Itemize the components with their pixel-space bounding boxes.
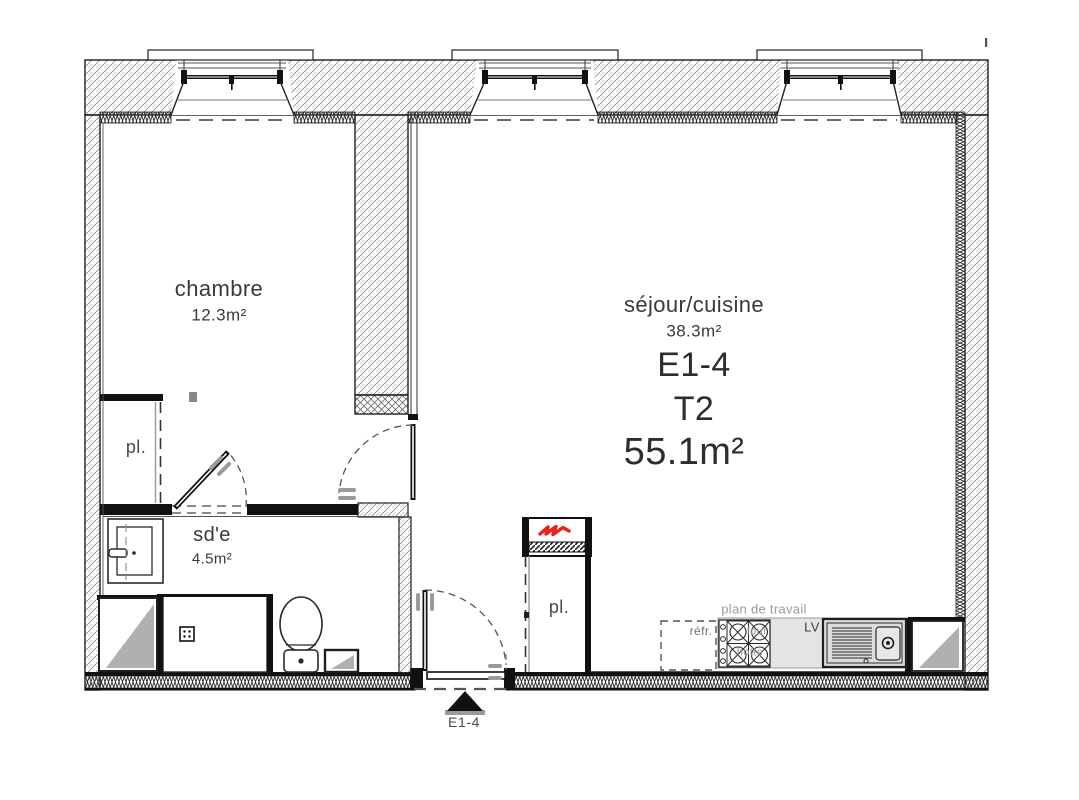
sde-door <box>175 452 246 508</box>
partition-walls <box>100 115 905 673</box>
window-3 <box>757 50 922 120</box>
dishwasher-label: LV <box>804 621 820 634</box>
room-label-sde: sd'e <box>193 525 231 545</box>
closet-chambre <box>156 392 198 503</box>
room-area-sejour: 38.3m² <box>666 323 721 340</box>
floor-plan-page: chambre 12.3m² séjour/cuisine 38.3m² E1-… <box>0 0 1079 800</box>
room-label-chambre: chambre <box>175 278 263 300</box>
toilet <box>280 597 322 672</box>
hood-label: hotte <box>737 648 763 659</box>
closet-label-chambre: pl. <box>126 438 146 456</box>
closet-entry <box>523 518 591 673</box>
shower-drain-icon <box>180 627 194 641</box>
shaft-kitchen <box>905 617 965 673</box>
sde-door-opening <box>172 506 247 513</box>
room-area-sde: 4.5m² <box>192 552 232 567</box>
counter-label: plan de travail <box>721 603 806 616</box>
closet-label-entry: pl. <box>549 598 569 616</box>
fridge-label: réfr. <box>690 625 713 637</box>
entry-arrow-icon <box>447 691 483 711</box>
chambre-door <box>339 414 418 500</box>
entry-door <box>414 590 510 689</box>
reference-tick <box>985 38 987 47</box>
room-label-sejour: séjour/cuisine <box>624 294 764 316</box>
shower <box>157 594 273 673</box>
kitchen-sink <box>823 619 906 667</box>
room-area-chambre: 12.3m² <box>191 307 246 324</box>
entry-door-label: E1-4 <box>448 715 480 729</box>
vanity-sink <box>108 519 163 583</box>
door-handle-icon <box>211 458 229 474</box>
shaft-bathroom <box>97 595 159 671</box>
shaft-toilet <box>325 650 358 672</box>
window-2 <box>452 50 618 120</box>
oven-label: four <box>747 627 768 638</box>
door-handle-icon <box>340 490 354 498</box>
floor-plan-drawing <box>0 0 1079 800</box>
unit-area: 55.1m² <box>624 433 745 471</box>
unit-type: T2 <box>674 392 714 426</box>
entry-marker <box>445 691 485 715</box>
unit-code: E1-4 <box>657 348 730 382</box>
